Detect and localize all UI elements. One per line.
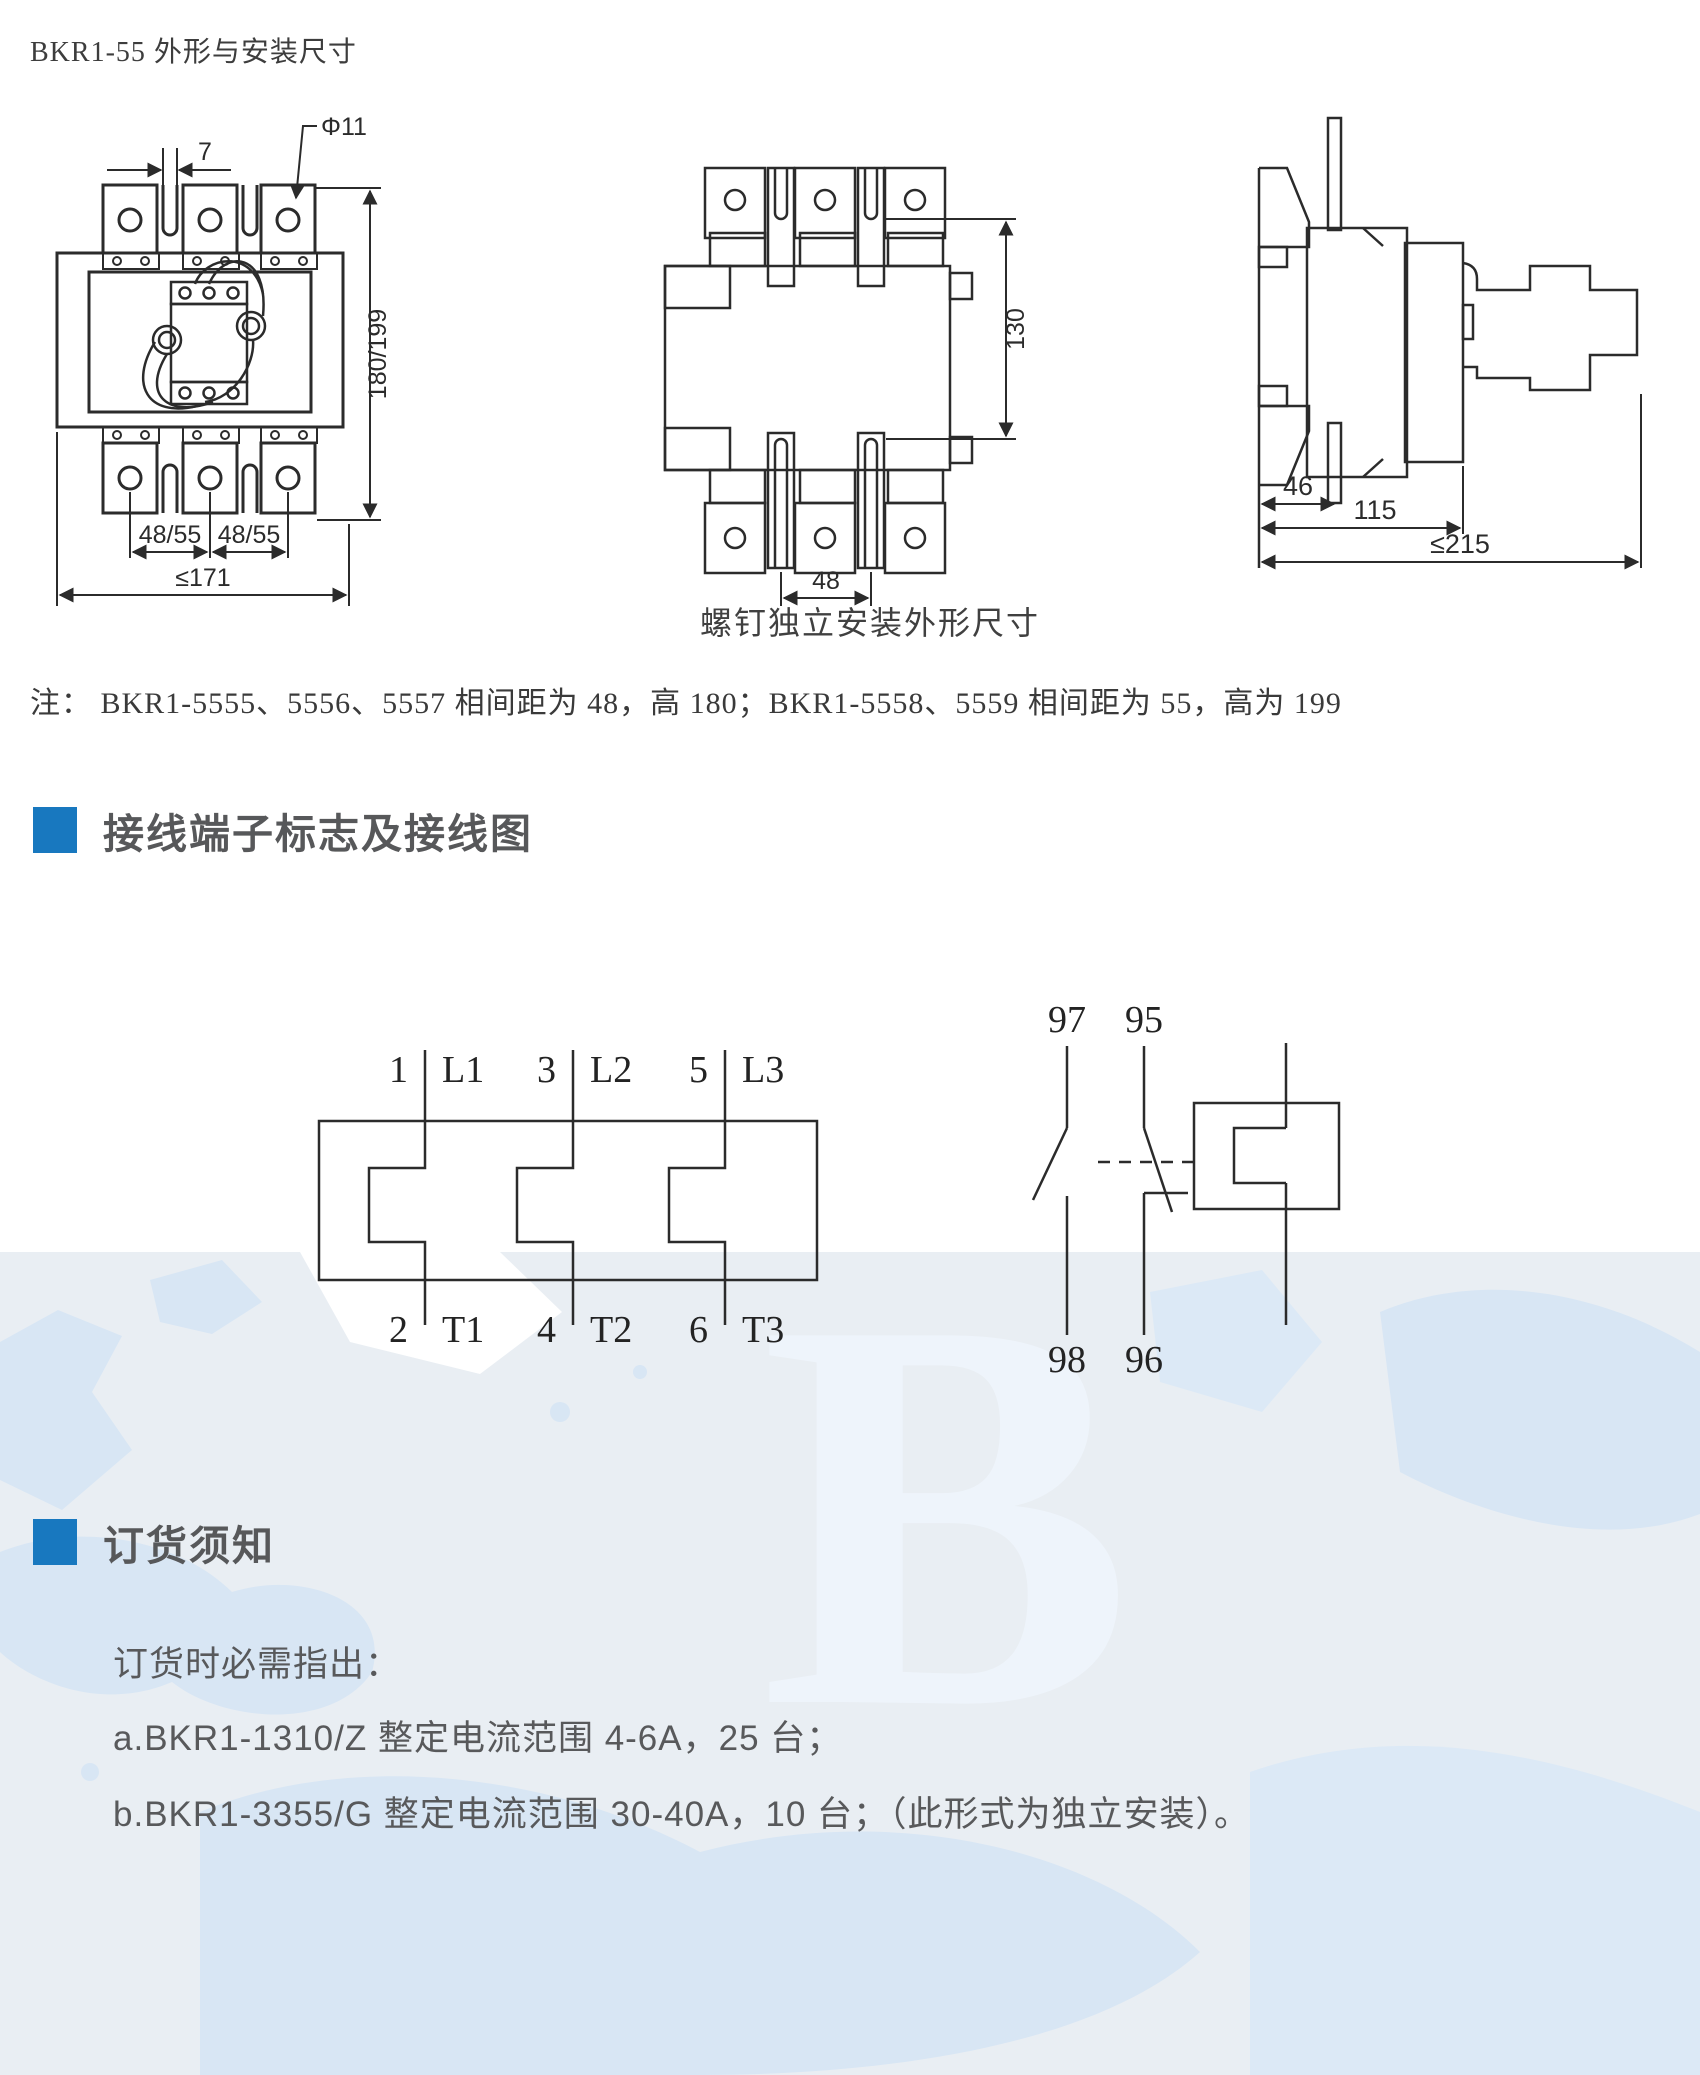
ordering-item-a: a.BKR1-1310/Z 整定电流范围 4-6A，25 台； bbox=[113, 1710, 842, 1761]
dim-slot-width: 7 bbox=[198, 138, 212, 166]
terminal-num: 2 bbox=[389, 1309, 408, 1351]
dim-overall-width: ≤171 bbox=[175, 564, 230, 592]
dim-pole-pitch-1: 48/55 bbox=[139, 521, 202, 549]
no-contact-symbol bbox=[1033, 1046, 1067, 1335]
contact-96-label: 96 bbox=[1125, 1339, 1163, 1381]
terminal-name: T3 bbox=[742, 1309, 784, 1351]
dim-mounting-pitch: 48 bbox=[812, 567, 840, 595]
dim-height: 180/199 bbox=[364, 309, 392, 399]
datasheet-page: B BKR1-55 外形与安装尺寸 bbox=[0, 0, 1700, 2075]
drawing-caption: 螺钉独立安装外形尺寸 bbox=[530, 598, 1210, 644]
dim-pole-pitch-2: 48/55 bbox=[218, 521, 281, 549]
section-wiring-header: 接线端子标志及接线图 bbox=[33, 800, 533, 860]
dimension-note: 注： BKR1-5555、5556、5557 相间距为 48，高 180；BKR… bbox=[30, 678, 1370, 722]
ordering-item-b: b.BKR1-3355/G 整定电流范围 30-40A，10 台；（此形式为独立… bbox=[113, 1786, 1250, 1837]
terminal-num: 4 bbox=[537, 1309, 556, 1351]
page-title: BKR1-55 外形与安装尺寸 bbox=[30, 30, 357, 70]
terminal-name: T1 bbox=[442, 1309, 484, 1351]
terminal-wiring-diagram: 1 L1 3 L2 5 L3 2 T1 4 T2 6 T3 bbox=[300, 1020, 860, 1355]
terminal-num: 6 bbox=[689, 1309, 708, 1351]
terminal-num: 3 bbox=[537, 1049, 556, 1091]
contact-95-label: 95 bbox=[1125, 1000, 1163, 1041]
section-ordering-title: 订货须知 bbox=[103, 1512, 275, 1572]
contactor-detail bbox=[143, 261, 265, 408]
front-view-drawing: 7 Φ11 180/199 48/55 48/55 ≤171 bbox=[55, 100, 400, 610]
heater-element-symbol bbox=[1194, 1043, 1339, 1325]
terminal-name: L2 bbox=[590, 1049, 632, 1091]
section-bullet-icon bbox=[33, 807, 77, 853]
terminal-name: L3 bbox=[742, 1049, 784, 1091]
side-view-drawing: 46 115 ≤215 bbox=[1245, 100, 1665, 575]
dim-depth-215: ≤215 bbox=[1430, 529, 1490, 559]
dim-depth-115: 115 bbox=[1353, 495, 1396, 525]
section-ordering-header: 订货须知 bbox=[33, 1512, 275, 1572]
terminal-name: L1 bbox=[442, 1049, 484, 1091]
terminal-num: 1 bbox=[389, 1049, 408, 1091]
dim-hole-diameter: Φ11 bbox=[321, 113, 367, 141]
terminal-name: T2 bbox=[590, 1309, 632, 1351]
contact-97-label: 97 bbox=[1048, 1000, 1086, 1041]
section-bullet-icon bbox=[33, 1519, 77, 1565]
terminal-num: 5 bbox=[689, 1049, 708, 1091]
nc-contact-symbol bbox=[1144, 1046, 1188, 1335]
dim-depth-46: 46 bbox=[1283, 471, 1313, 501]
section-wiring-title: 接线端子标志及接线图 bbox=[103, 800, 533, 860]
contact-circuit-diagram: 97 95 98 96 bbox=[1020, 1000, 1390, 1385]
mounting-view-drawing: 130 48 bbox=[660, 138, 1070, 618]
dim-mounting-height: 130 bbox=[1002, 308, 1030, 350]
ordering-intro: 订货时必需指出： bbox=[113, 1636, 401, 1687]
contact-98-label: 98 bbox=[1048, 1339, 1086, 1381]
